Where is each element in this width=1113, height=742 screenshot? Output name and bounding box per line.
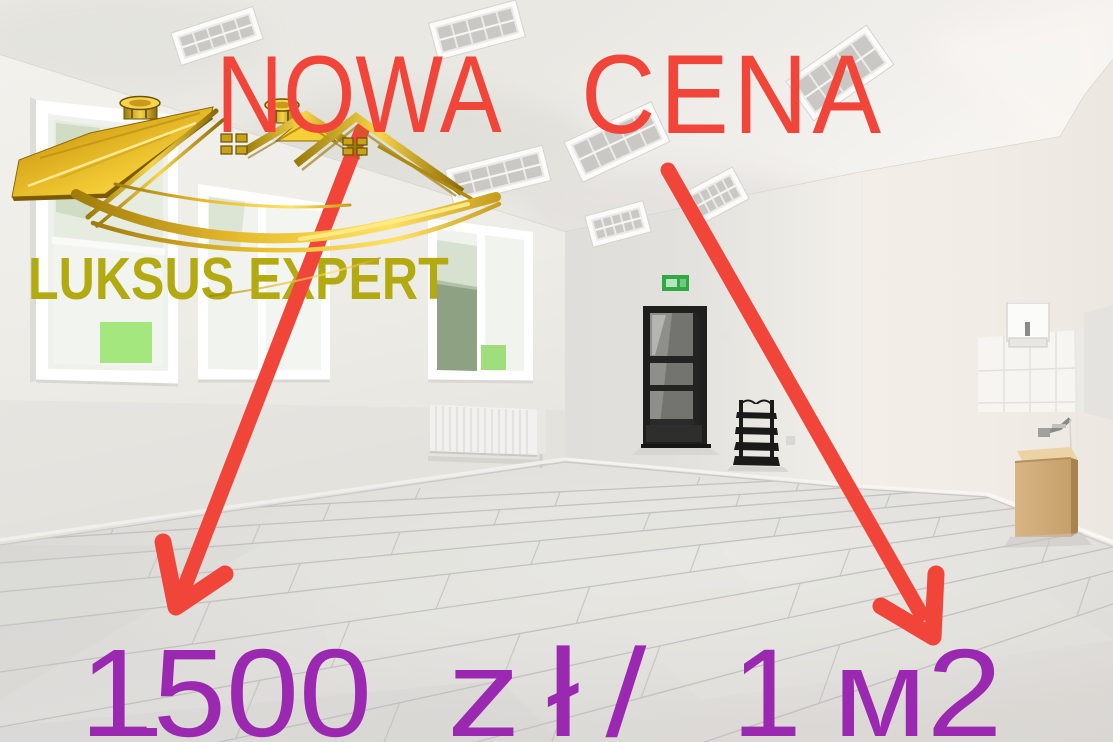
svg-text:CENA: CENA [581,32,886,157]
svg-text:NOWA: NOWA [216,33,502,156]
svg-text:zł/: zł/ [447,623,672,742]
svg-text:1: 1 [732,624,802,742]
svg-text:LUKSUS EXPERT: LUKSUS EXPERT [28,245,449,312]
svg-text:м2: м2 [833,623,1002,742]
svg-text:1500: 1500 [80,624,372,742]
